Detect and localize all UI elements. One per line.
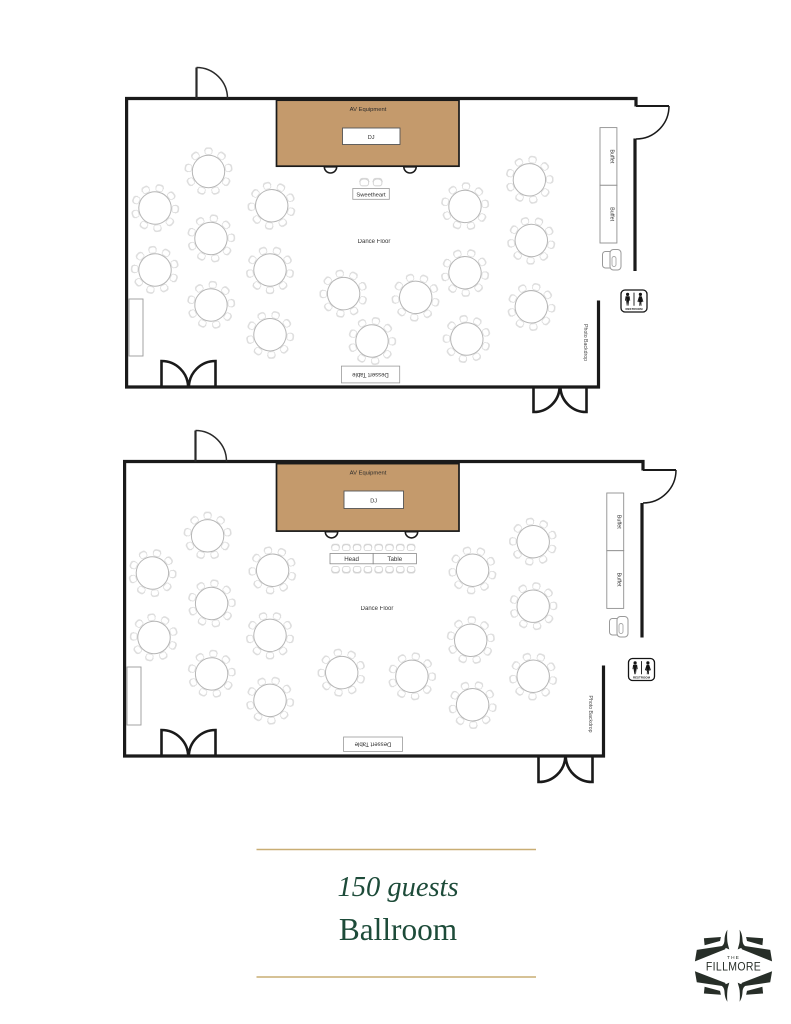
svg-text:Sweetheart: Sweetheart (356, 192, 386, 198)
svg-text:Head: Head (344, 556, 359, 563)
svg-text:Dance Floor: Dance Floor (361, 606, 394, 612)
svg-text:Dance Floor: Dance Floor (358, 239, 391, 245)
svg-text:150 guests: 150 guests (337, 872, 458, 903)
svg-text:DJ: DJ (368, 135, 375, 141)
svg-text:Dessert Table: Dessert Table (352, 371, 389, 377)
svg-text:AV Equipment: AV Equipment (350, 471, 387, 477)
svg-text:AV Equipment: AV Equipment (350, 107, 387, 113)
svg-text:Table: Table (387, 556, 402, 563)
svg-text:Ballroom: Ballroom (339, 912, 457, 947)
svg-text:FILLMORE: FILLMORE (706, 961, 761, 974)
svg-text:DJ: DJ (370, 499, 377, 505)
svg-text:Photo Backdrop: Photo Backdrop (582, 324, 588, 361)
svg-text:Photo Backdrop: Photo Backdrop (587, 696, 593, 733)
svg-text:Dessert Table: Dessert Table (354, 741, 391, 747)
